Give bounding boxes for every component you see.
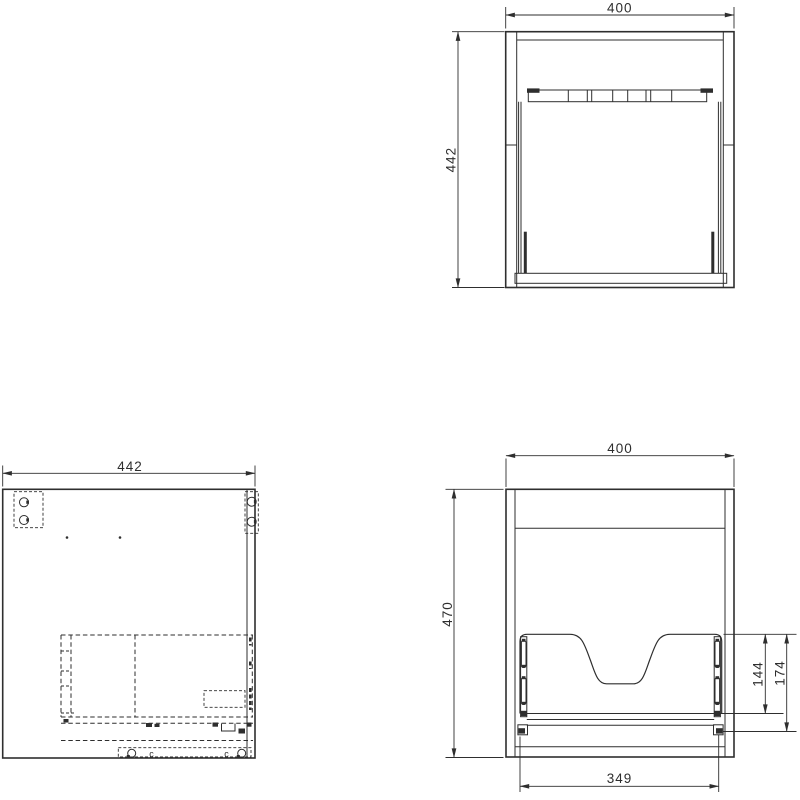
dimension-drawer-width: 349 <box>520 735 719 793</box>
clip-label-left: c <box>149 749 154 759</box>
drawer-sides-top-view <box>519 102 721 274</box>
dim-label-349: 349 <box>607 771 633 786</box>
dowel-mark <box>119 536 122 539</box>
dimension-top-depth: 442 <box>444 32 505 288</box>
drawer-slide-left <box>518 637 528 735</box>
bottom-clip-strip: c c <box>118 748 251 759</box>
slide-detail-hidden <box>204 691 245 708</box>
slide-hardware-hidden <box>64 719 252 734</box>
drawer-bottom-rail <box>527 714 714 726</box>
dowel-mark <box>66 536 69 539</box>
top-view: 400 442 <box>444 0 735 287</box>
wall-hanger-fitting-back <box>14 492 43 528</box>
dim-label-144: 144 <box>751 661 766 687</box>
dimension-front-height: 470 <box>440 489 504 757</box>
front-view: 400 470 144 174 349 <box>440 441 797 792</box>
clip-label-right: c <box>224 749 229 759</box>
dim-label-top-442: 442 <box>444 147 459 173</box>
dimension-top-width: 400 <box>506 0 734 28</box>
dim-label-top-400: 400 <box>607 0 633 15</box>
gallery-rail-top-view <box>527 88 713 101</box>
drawing-canvas: 400 442 <box>0 0 800 800</box>
drawer-front-top-view <box>515 273 727 283</box>
side-view: c c 442 <box>3 459 259 759</box>
dim-label-side-442: 442 <box>117 459 143 474</box>
dimension-side-depth: 442 <box>3 459 255 487</box>
dim-label-174: 174 <box>773 660 788 686</box>
drawer-back-with-basin-cutout <box>520 634 722 713</box>
technical-drawing: 400 442 <box>0 0 800 800</box>
dim-label-front-470: 470 <box>440 601 455 627</box>
dimension-front-width: 400 <box>506 441 734 487</box>
dim-label-front-400: 400 <box>607 441 633 456</box>
